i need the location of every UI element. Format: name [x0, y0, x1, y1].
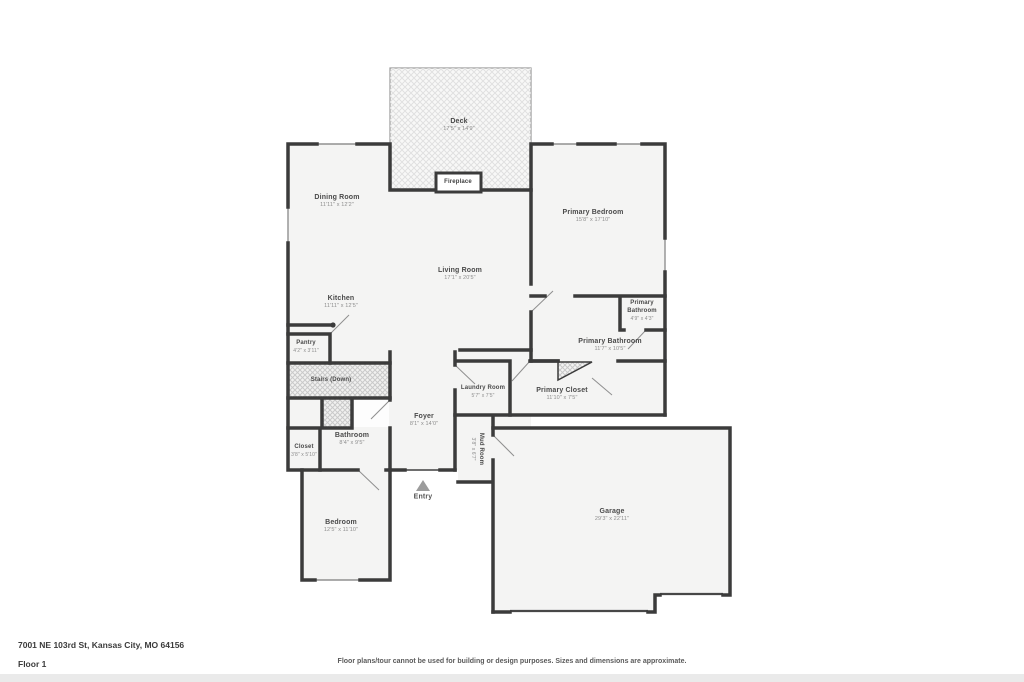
room-dims: 4'2" x 3'11" — [293, 348, 318, 355]
room-dims: 17'1" x 20'5" — [438, 275, 482, 282]
room-label-closet: Closet 3'8" x 5'10" — [291, 444, 317, 458]
room-name: Bedroom — [324, 518, 358, 527]
room-label-bathroom: Bathroom 8'4" x 9'5" — [335, 431, 369, 447]
room-label-laundry-room: Laundry Room 5'7" x 7'5" — [461, 385, 505, 399]
room-label-mud-room: Mud Room 3'8" x 6'7" — [470, 433, 484, 465]
room-name: Primary Bedroom — [563, 208, 624, 217]
room-dims: 15'8" x 17'10" — [563, 217, 624, 224]
room-dims: 3'8" x 5'10" — [291, 452, 317, 459]
room-dims: 11'7" x 10'5" — [578, 346, 641, 353]
room-dims: 8'1" x 14'0" — [410, 421, 438, 428]
room-name: Fireplace — [444, 179, 472, 187]
room-name: Primary Bathroom — [617, 300, 667, 316]
room-label-deck: Deck 17'5" x 14'9" — [443, 117, 474, 133]
room-dims: 5'7" x 7'5" — [461, 393, 505, 400]
disclaimer-text: Floor plans/tour cannot be used for buil… — [0, 658, 1024, 665]
room-name: Closet — [291, 444, 317, 452]
room-dims: 8'4" x 9'5" — [335, 440, 369, 447]
room-name: Garage — [595, 507, 629, 516]
room-label-primary-bathroom: Primary Bathroom 11'7" x 10'5" — [578, 337, 641, 353]
room-name: Foyer — [410, 412, 438, 421]
room-name: Living Room — [438, 266, 482, 275]
room-name: Primary Bathroom — [578, 337, 641, 346]
room-label-pantry: Pantry 4'2" x 3'11" — [293, 340, 318, 354]
room-name: Primary Closet — [536, 386, 588, 395]
bottom-bar — [0, 674, 1024, 682]
room-dims: 29'3" x 22'11" — [595, 516, 629, 523]
room-name: Stairs (Down) — [311, 377, 352, 385]
room-label-garage: Garage 29'3" x 22'11" — [595, 507, 629, 523]
floorplan-drawing — [0, 0, 1024, 682]
room-name: Pantry — [293, 340, 318, 348]
room-label-foyer: Foyer 8'1" x 14'0" — [410, 412, 438, 428]
room-label-entry: Entry — [414, 492, 433, 501]
room-label-bedroom: Bedroom 12'5" x 11'10" — [324, 518, 358, 534]
room-name: Kitchen — [324, 294, 358, 303]
room-dims: 17'5" x 14'9" — [443, 126, 474, 133]
entry-arrow-icon — [416, 480, 430, 491]
room-dims: 11'11" x 12'5" — [324, 303, 358, 310]
room-dims: 12'5" x 11'10" — [324, 527, 358, 534]
room-name: Dining Room — [314, 193, 359, 202]
room-name: Bathroom — [335, 431, 369, 440]
room-dims: 3'8" x 6'7" — [470, 433, 477, 465]
room-dims: 4'9" x 4'3" — [617, 316, 667, 323]
room-name: Entry — [414, 492, 433, 501]
room-label-primary-bathroom-small: Primary Bathroom 4'9" x 4'3" — [617, 300, 667, 322]
room-label-dining-room: Dining Room 11'11" x 12'2" — [314, 193, 359, 209]
room-name: Deck — [443, 117, 474, 126]
room-dims: 11'11" x 12'2" — [314, 202, 359, 209]
room-label-fireplace: Fireplace — [444, 179, 472, 187]
room-label-stairs: Stairs (Down) — [311, 377, 352, 385]
room-label-primary-bedroom: Primary Bedroom 15'8" x 17'10" — [563, 208, 624, 224]
property-address: 7001 NE 103rd St, Kansas City, MO 64156 — [18, 640, 184, 650]
room-name: Mud Room — [476, 433, 484, 465]
room-dims: 11'10" x 7'5" — [536, 395, 588, 402]
room-label-living-room: Living Room 17'1" x 20'5" — [438, 266, 482, 282]
floorplan-page: Deck 17'5" x 14'9" Fireplace Dining Room… — [0, 0, 1024, 682]
counter-end-cap — [330, 322, 335, 327]
room-label-kitchen: Kitchen 11'11" x 12'5" — [324, 294, 358, 310]
room-label-primary-closet: Primary Closet 11'10" x 7'5" — [536, 386, 588, 402]
room-name: Laundry Room — [461, 385, 505, 393]
